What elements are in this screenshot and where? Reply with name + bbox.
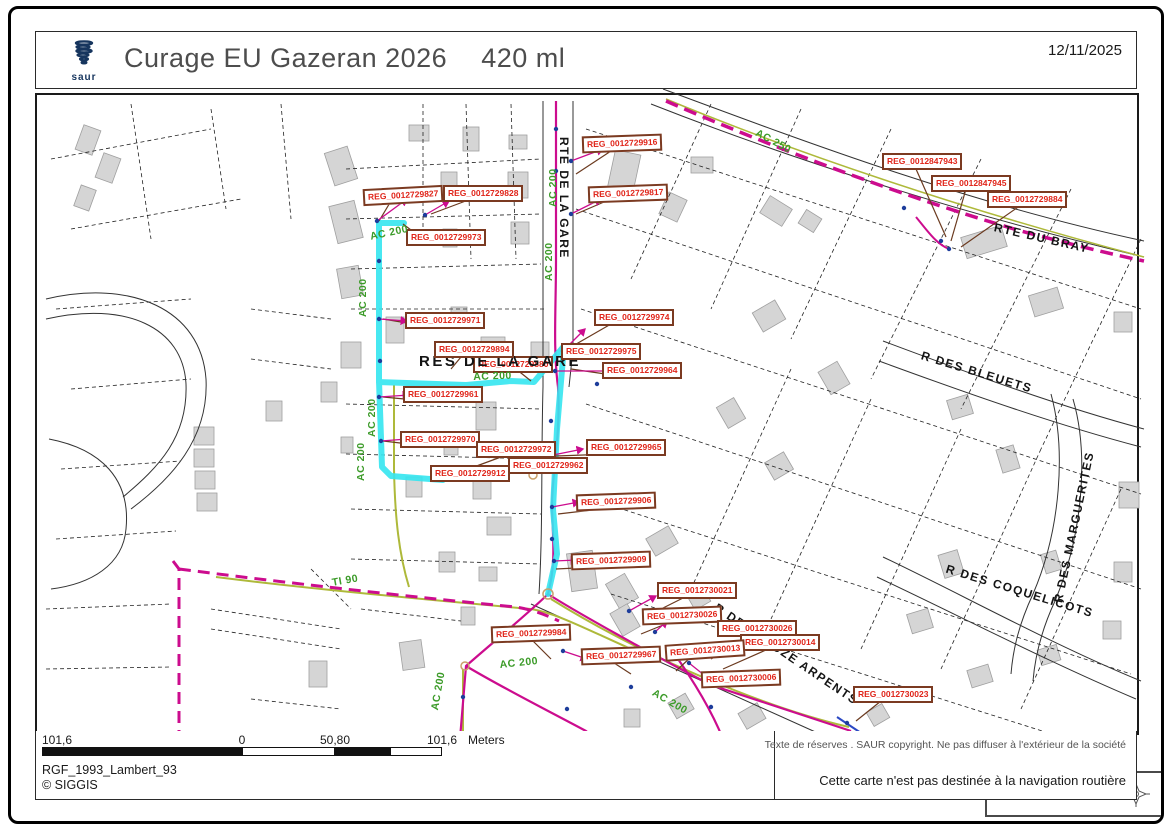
navigation-disclaimer: Cette carte n'est pas destinée à la navi… (819, 773, 1126, 788)
leaders-magenta (377, 149, 709, 679)
reg-label: REG_0012847945 (931, 175, 1011, 192)
reg-label: REG_0012729974 (594, 309, 674, 326)
street-label: RES DE LA GARE (419, 353, 581, 370)
reg-label: REG_0012730006 (701, 669, 782, 689)
reg-label: REG_0012729973 (406, 229, 486, 246)
scalebar-label: 101,6 (42, 733, 72, 747)
street-label: R DES BLEUETS (919, 348, 1034, 395)
projection-label: RGF_1993_Lambert_93 (42, 763, 177, 777)
pipes-olive-layer (216, 99, 1144, 739)
pipe-label: AC 200 (429, 671, 448, 711)
street-label: R DES COQUELICOTS (944, 562, 1095, 620)
map-canvas (11, 9, 1164, 824)
date-label: 12/11/2025 (1048, 42, 1122, 59)
reg-label: REG_0012730026 (642, 606, 723, 626)
reg-label: REG_0012729971 (405, 312, 485, 329)
reg-label: REG_0012729916 (582, 134, 663, 154)
reg-label: REG_0012729906 (576, 492, 657, 512)
scalebar-unit: Meters (468, 733, 505, 747)
reg-label: REG_0012729984 (491, 624, 572, 644)
reg-label: REG_0012730026 (717, 620, 797, 637)
reg-label: REG_0012729961 (403, 386, 483, 403)
pipe-label: AC 200 (473, 370, 512, 383)
pipe-label: AC 200 (366, 398, 378, 437)
header: saur Curage EU Gazeran 2026420 ml 12/11/… (35, 31, 1137, 89)
reg-label: REG_0012729967 (581, 646, 662, 666)
street-label: RTE DE LA GARE (557, 137, 571, 259)
pipe-label: AC 250 (753, 127, 793, 156)
title-main: Curage EU Gazeran 2026 (124, 43, 447, 73)
reg-label: REG_0012729909 (571, 551, 652, 571)
footer: 101,6 0 50,80 101,6 Meters RGF_1993_Lamb… (35, 731, 1137, 800)
highlight-route (379, 223, 564, 594)
reg-label: REG_0012730023 (853, 686, 933, 703)
reg-label: REG_0012729965 (586, 439, 666, 456)
reg-label: REG_0012729972 (476, 441, 556, 458)
logo-label: saur (64, 72, 104, 83)
parcels-layer (46, 104, 1141, 737)
scalebar-label: 50,80 (320, 733, 350, 747)
pipe-label: AC 200 (357, 278, 369, 317)
pipe-label: AC 200 (369, 223, 409, 243)
map-viewport: REG_0012729880 RTE DE LA GARE RES DE LA … (35, 93, 1139, 735)
pipe-label: AC 200 (547, 168, 559, 207)
reg-label: REG_0012729962 (508, 457, 588, 474)
reg-label: REG_0012729880 (473, 356, 553, 373)
reg-label: REG_0012730021 (657, 582, 737, 599)
pipe-label: AC 200 (543, 242, 555, 281)
scalebar-label: 101,6 (427, 733, 457, 747)
buildings-layer (74, 125, 1139, 730)
street-label: RTE DU BRAY (993, 220, 1091, 256)
pipe-label: AC 200 (650, 687, 689, 717)
leaders-brown (379, 151, 1021, 721)
reg-label: REG_0012730013 (665, 639, 746, 662)
print-page: saur Curage EU Gazeran 2026420 ml 12/11/… (8, 6, 1164, 824)
node-dots (375, 127, 951, 725)
saur-logo-icon: saur (64, 38, 104, 84)
reg-label: REG_0012729975 (561, 343, 641, 360)
reg-label: REG_0012729912 (430, 465, 510, 482)
street-label: R DES DOUZE ARPENTS (712, 600, 861, 707)
reg-label: REG_0012847943 (882, 153, 962, 170)
pipe-label: AC 200 (355, 442, 367, 481)
reg-label: REG_0012730014 (740, 634, 820, 651)
pipes-magenta-layer (173, 101, 1144, 739)
street-label: R DES MARGUERITES (1051, 450, 1097, 604)
title-quantity: 420 ml (481, 43, 565, 73)
reg-label: REG_0012729817 (588, 184, 669, 204)
roads-layer (46, 89, 1144, 739)
reg-label: REG_0012729970 (400, 431, 480, 448)
scalebar-label: 0 (239, 733, 246, 747)
pipe-label: AC 200 (499, 655, 539, 671)
reg-label: REG_0012729964 (602, 362, 682, 379)
pipe-label: TI 90 (331, 572, 359, 588)
scalebar (42, 747, 442, 756)
page-title: Curage EU Gazeran 2026420 ml (124, 43, 565, 74)
reserve-text: Texte de réserves . SAUR copyright. Ne p… (765, 739, 1126, 751)
reg-label: REG_0012729827 (363, 185, 444, 206)
reg-label: REG_0012729894 (434, 341, 514, 358)
reg-label: REG_0012729828 (443, 185, 523, 202)
reg-label: REG_0012729884 (987, 191, 1067, 208)
copyright-label: © SIGGIS (42, 778, 98, 792)
